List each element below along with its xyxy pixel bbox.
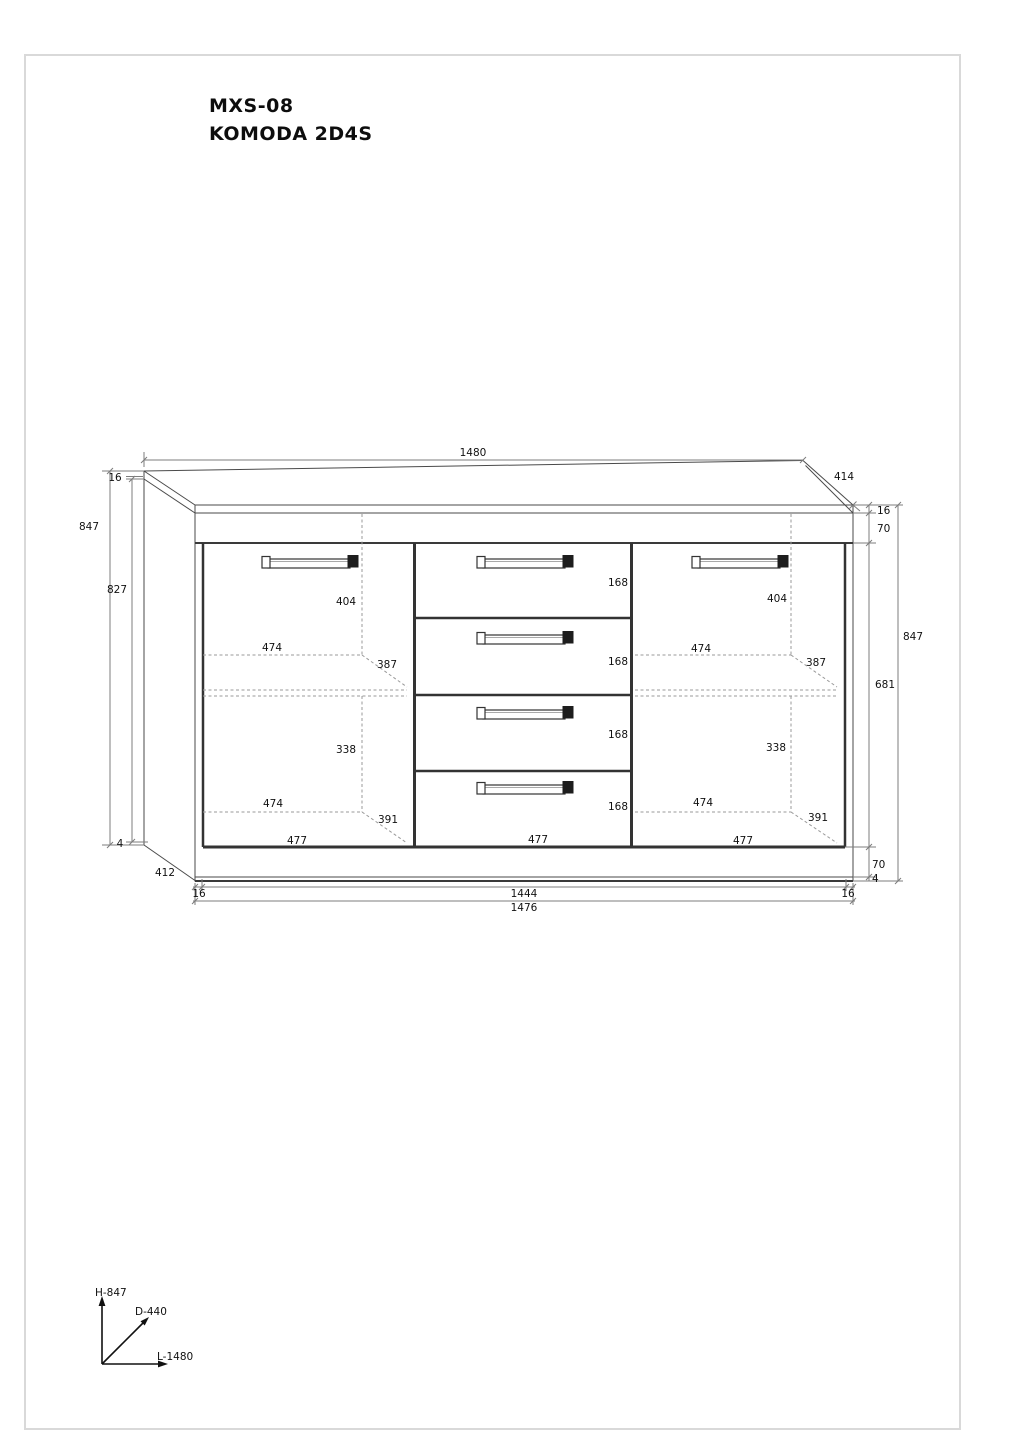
drawer-width: 477 xyxy=(528,834,548,846)
dim-bottom-inner-width: 1444 xyxy=(511,888,538,900)
drawer-3-handle-icon xyxy=(477,707,573,720)
dim-height-left: 847 xyxy=(79,521,99,533)
dim-bottom-left-thickness: 16 xyxy=(192,888,206,900)
dim-bottom-right-thickness: 16 xyxy=(841,888,855,900)
drawer-1-handle-icon xyxy=(477,556,573,569)
technical-drawing-page: MXS-08 KOMODA 2D4S xyxy=(0,0,1024,1449)
cabinet-outline xyxy=(144,461,853,882)
dim-base-left: 4 xyxy=(117,838,124,850)
right-door-handle-icon xyxy=(692,556,788,569)
doors-and-drawers xyxy=(203,543,845,847)
dim-height-right: 847 xyxy=(903,631,923,643)
left-door-dim-474-upper: 474 xyxy=(262,642,282,654)
page-border xyxy=(25,55,960,1429)
dimension-lines xyxy=(102,452,903,905)
axis-height-label: H-847 xyxy=(95,1287,127,1299)
page-subtitle: KOMODA 2D4S xyxy=(209,123,373,145)
left-door-dim-474-lower: 474 xyxy=(263,798,283,810)
top-left-depth-edge-inner xyxy=(144,479,195,513)
right-door-dim-474-lower: 474 xyxy=(693,797,713,809)
drawer-2-handle-icon xyxy=(477,632,573,645)
dim-right-base: 4 xyxy=(872,873,879,885)
left-door-dim-391: 391 xyxy=(378,814,398,826)
left-door-width: 477 xyxy=(287,835,307,847)
right-door-dim-338: 338 xyxy=(766,742,786,754)
dim-right-top-thickness: 16 xyxy=(877,505,891,517)
right-door-dim-391: 391 xyxy=(808,812,828,824)
right-door-width: 477 xyxy=(733,835,753,847)
drawer-2-height: 168 xyxy=(608,656,628,668)
page-title: MXS-08 xyxy=(209,95,294,117)
dimension-labels: 1480 414 16 847 827 4 412 16 1444 16 147… xyxy=(79,447,923,914)
dim-inner-height: 827 xyxy=(107,584,127,596)
top-left-depth-edge xyxy=(144,471,195,505)
drawer-4-handle-icon xyxy=(477,782,573,795)
furniture-drawing-svg: MXS-08 KOMODA 2D4S xyxy=(0,0,1024,1449)
axis-depth-label: D-440 xyxy=(135,1306,167,1318)
left-door-dim-387: 387 xyxy=(377,659,397,671)
axis-length-label: L-1480 xyxy=(157,1351,193,1363)
top-back-edge xyxy=(144,461,803,472)
right-door-dim-387: 387 xyxy=(806,657,826,669)
dim-bottom-depth: 412 xyxy=(155,867,175,879)
dim-top-thickness: 16 xyxy=(108,472,122,484)
left-door-handle-icon xyxy=(262,556,358,569)
right-door-dim-474-upper: 474 xyxy=(691,643,711,655)
dim-top-width: 1480 xyxy=(460,447,487,459)
drawer-1-height: 168 xyxy=(608,577,628,589)
left-door-dim-404: 404 xyxy=(336,596,356,608)
dim-right-plinth: 70 xyxy=(872,859,885,871)
right-door-dim-404: 404 xyxy=(767,593,787,605)
dim-right-top-rail: 70 xyxy=(877,523,890,535)
dim-top-depth: 414 xyxy=(834,471,854,483)
axis-legend: H-847 D-440 L-1480 xyxy=(95,1287,193,1367)
dim-bottom-total-width: 1476 xyxy=(511,902,538,914)
drawer-4-height: 168 xyxy=(608,801,628,813)
dim-door-height: 681 xyxy=(875,679,895,691)
drawer-3-height: 168 xyxy=(608,729,628,741)
left-door-dim-338: 338 xyxy=(336,744,356,756)
